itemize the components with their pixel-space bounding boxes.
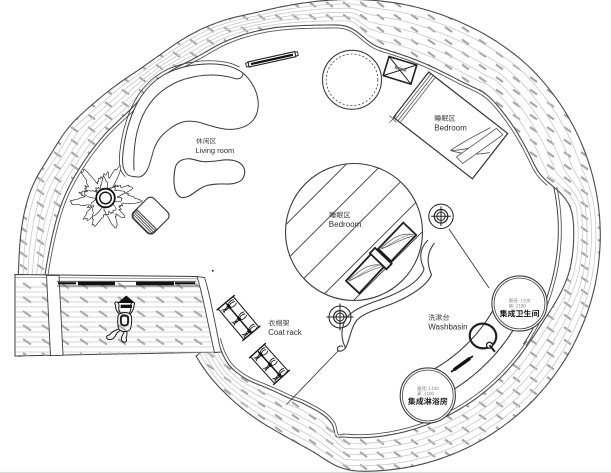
svg-text:Coat rack: Coat rack	[268, 328, 301, 337]
svg-text:Bedroom: Bedroom	[329, 220, 362, 229]
svg-text:Bedroom: Bedroom	[434, 123, 467, 132]
svg-text:Washbasin: Washbasin	[428, 322, 467, 331]
svg-text:Living room: Living room	[196, 146, 235, 155]
